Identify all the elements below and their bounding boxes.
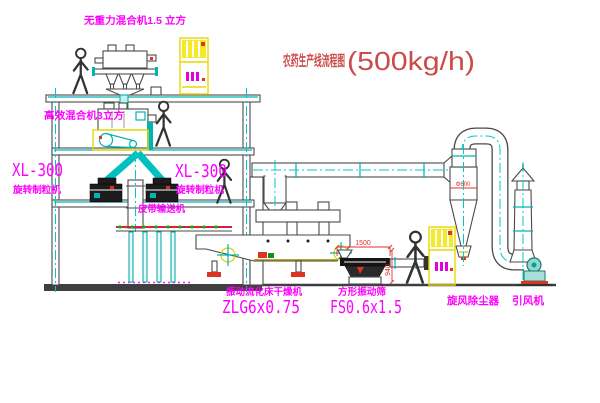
- label-dryer-model: ZLG6x0.75: [222, 297, 300, 318]
- dim-screen-height: 940: [385, 264, 392, 276]
- dim-screen-length: 1500: [355, 240, 371, 247]
- label-screen-model: FS0.6x1.5: [330, 297, 402, 318]
- granulator-right: [146, 184, 178, 202]
- label-granulator-right: 旋转制粒机: [175, 184, 224, 196]
- flow-diagram-svg: 无重力混合机1.5 立方 农药生产线流程图 (500kg/h) 高效混合机3立方…: [0, 0, 600, 403]
- cad-canvas: 无重力混合机1.5 立方 农药生产线流程图 (500kg/h) 高效混合机3立方…: [0, 0, 600, 403]
- label-belt-conveyor: 皮带输送机: [137, 203, 185, 215]
- worker-roof: [73, 49, 87, 93]
- granulator-left: [90, 184, 122, 202]
- diagram-title-capacity: (500kg/h): [347, 46, 475, 76]
- control-cabinet-1: [180, 38, 208, 94]
- worker-screen-area: [407, 232, 423, 283]
- label-xl300-left: XL-300: [12, 161, 63, 181]
- fluid-bed-dryer: [196, 202, 352, 277]
- label-mid-mixer: 高效混合机3立方: [44, 109, 124, 122]
- cyclone-dust-collector: [450, 144, 477, 266]
- label-cyclone: 旋风除尘器: [446, 294, 499, 307]
- label-fan: 引风机: [512, 294, 545, 307]
- conveyor-legs: [129, 232, 175, 282]
- label-top-mixer: 无重力混合机1.5 立方: [83, 14, 186, 27]
- dim-cyclone-dia: Φ600: [456, 182, 471, 188]
- control-cabinet-2: [429, 227, 455, 285]
- label-xl300-right: XL-300: [175, 162, 227, 182]
- mixer-valves: [106, 74, 144, 89]
- diagram-title-zh: 农药生产线流程图: [282, 52, 345, 70]
- belt-drive-box: [93, 130, 148, 150]
- worker-mid-floor: [156, 102, 170, 146]
- label-granulator-left: 旋转制粒机: [12, 184, 61, 196]
